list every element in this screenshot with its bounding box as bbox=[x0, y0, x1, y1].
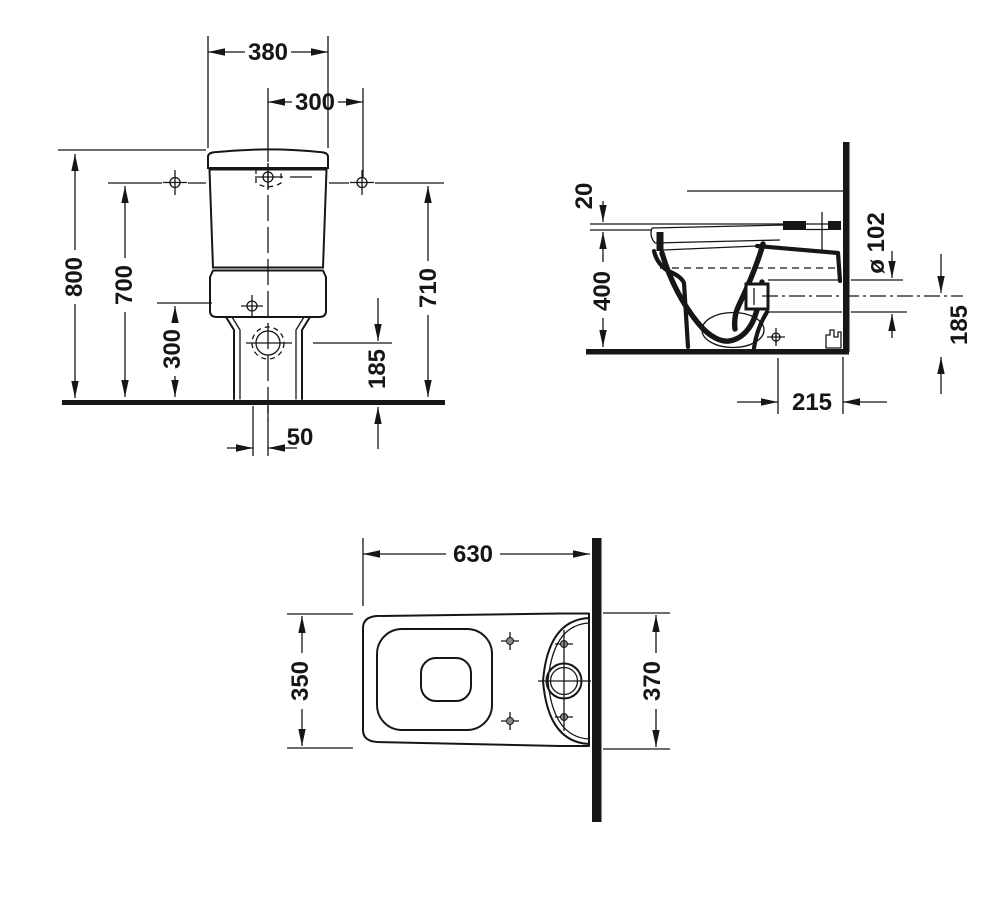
front-connection-crosshair-left bbox=[163, 170, 187, 195]
front-connection-crosshair-right bbox=[350, 170, 374, 195]
dim-front-overall-height: 800 bbox=[61, 257, 88, 297]
front-pedestal-left-outer bbox=[226, 317, 234, 399]
side-toilet-outline bbox=[586, 142, 963, 355]
side-bowl-inner-left bbox=[662, 253, 729, 341]
side-rim-top bbox=[663, 246, 757, 250]
front-dimensions-left: 800 700 300 bbox=[58, 150, 212, 398]
dim-front-connection-height: 700 bbox=[111, 265, 138, 305]
front-dimensions-right: 710 185 bbox=[313, 183, 444, 449]
front-pedestal-right-outer bbox=[302, 317, 310, 399]
side-floor-line bbox=[586, 349, 849, 355]
drawing-page: 380 300 800 700 300 bbox=[0, 0, 1000, 898]
side-seat-hinge-wall bbox=[828, 221, 841, 230]
side-seat-hinge bbox=[783, 221, 806, 230]
side-bracket-icon bbox=[826, 330, 841, 348]
dim-front-supply-inlet-height: 300 bbox=[159, 329, 186, 369]
dim-side-bowl-rim-height: 400 bbox=[589, 271, 616, 311]
front-view: 380 300 800 700 300 bbox=[58, 36, 445, 456]
plan-seat-outer bbox=[377, 629, 492, 730]
front-floor-line bbox=[62, 400, 445, 405]
dim-plan-cistern-width: 370 bbox=[639, 661, 666, 701]
top-view: 630 350 370 bbox=[287, 538, 670, 822]
side-bowl-back-top bbox=[757, 246, 840, 281]
front-dimensions-top: 380 300 bbox=[208, 36, 363, 177]
plan-toilet-outline bbox=[363, 538, 602, 822]
plan-wall bbox=[592, 538, 602, 822]
dim-side-seat-clearance: 20 bbox=[571, 183, 598, 210]
side-floor-outlet-crosshair bbox=[767, 328, 785, 346]
plan-seat-opening bbox=[421, 658, 471, 701]
side-wall bbox=[843, 142, 850, 352]
dim-front-center-to-connection: 300 bbox=[295, 89, 335, 116]
dim-front-outlet-center-offset: 50 bbox=[287, 424, 314, 451]
side-seat-front-edge bbox=[651, 228, 655, 243]
dim-front-cistern-width: 380 bbox=[248, 39, 288, 66]
front-dimensions-bottom: 50 bbox=[227, 406, 313, 456]
technical-drawing: 380 300 800 700 300 bbox=[0, 0, 1000, 898]
front-inlet-crosshair bbox=[241, 295, 263, 317]
plan-dimensions: 630 350 370 bbox=[287, 538, 670, 749]
dim-side-outlet-axis-height: 185 bbox=[946, 305, 973, 345]
dim-front-outlet-center-height: 185 bbox=[364, 349, 391, 389]
dim-plan-bowl-width: 350 bbox=[287, 661, 314, 701]
side-dimensions: 20 400 ø 102 185 215 bbox=[571, 183, 973, 416]
dim-front-cistern-top-height: 710 bbox=[415, 268, 442, 308]
front-drain-hole bbox=[246, 327, 292, 359]
dim-side-outlet-to-wall: 215 bbox=[792, 389, 832, 416]
side-view: 20 400 ø 102 185 215 bbox=[571, 142, 973, 416]
dim-plan-overall-depth: 630 bbox=[453, 541, 493, 568]
plan-inlet-circle bbox=[538, 630, 591, 731]
side-seat-top bbox=[652, 225, 785, 228]
dim-side-outlet-diameter: ø 102 bbox=[863, 212, 890, 273]
